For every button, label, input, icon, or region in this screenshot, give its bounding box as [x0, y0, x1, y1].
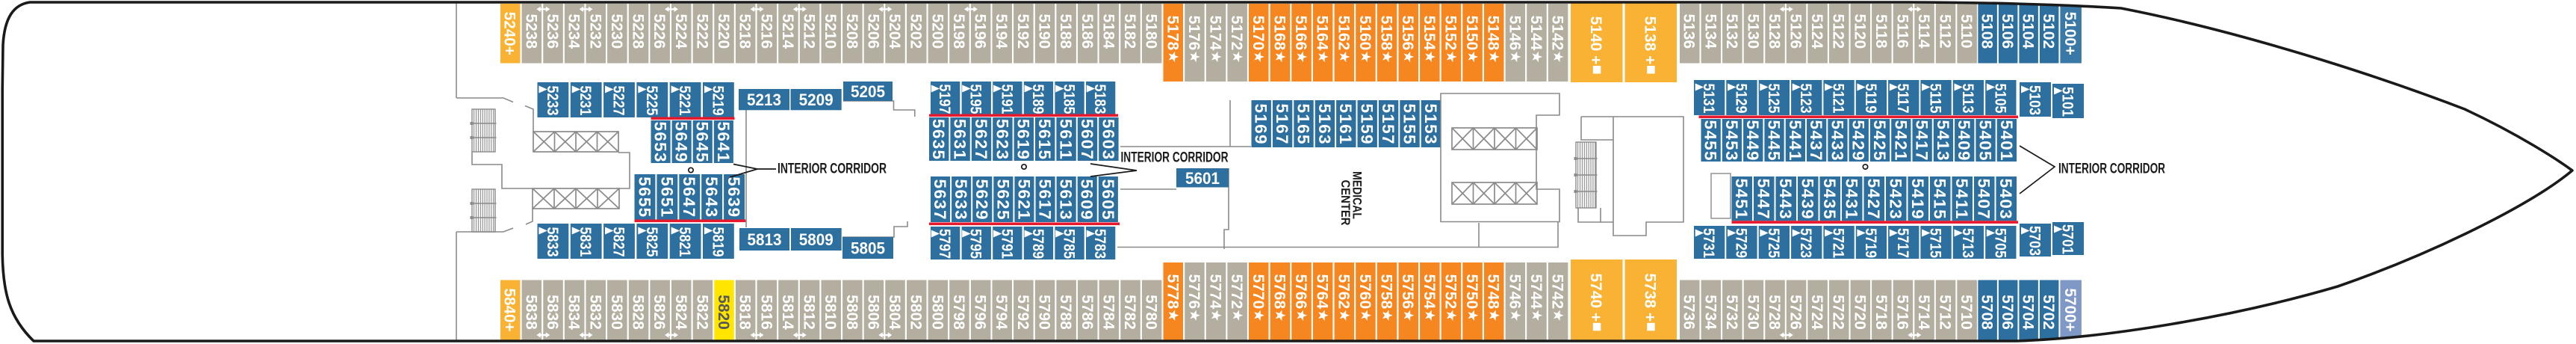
svg-text:5154: 5154	[1421, 16, 1438, 51]
svg-text:5785: 5785	[1061, 229, 1078, 259]
svg-text:5407: 5407	[1975, 179, 1993, 219]
svg-text:5224: 5224	[672, 13, 689, 49]
svg-text:5447: 5447	[1754, 179, 1773, 219]
svg-text:5234: 5234	[565, 13, 583, 49]
svg-text:5176: 5176	[1185, 16, 1202, 51]
svg-text:5185: 5185	[1061, 85, 1078, 114]
svg-text:5232: 5232	[586, 13, 603, 49]
svg-text:5732: 5732	[1723, 295, 1740, 330]
svg-text:5102: 5102	[2040, 13, 2057, 49]
svg-text:5639: 5639	[724, 176, 743, 217]
svg-text:5788: 5788	[1057, 295, 1074, 330]
svg-text:5635: 5635	[929, 119, 948, 159]
svg-text:5797: 5797	[936, 229, 953, 259]
svg-text:5445: 5445	[1765, 120, 1784, 161]
svg-text:5188: 5188	[1057, 13, 1074, 49]
svg-text:5128: 5128	[1766, 13, 1783, 49]
svg-text:5104: 5104	[2020, 13, 2037, 49]
svg-text:5163: 5163	[1315, 104, 1334, 144]
svg-text:5148: 5148	[1485, 16, 1502, 51]
svg-text:5609: 5609	[1078, 179, 1096, 220]
svg-text:5712: 5712	[1937, 295, 1954, 330]
svg-text:5774: 5774	[1207, 274, 1224, 309]
svg-text:5129: 5129	[1733, 84, 1750, 114]
svg-text:5178: 5178	[1164, 16, 1181, 51]
svg-text:5403: 5403	[1996, 179, 2015, 219]
svg-text:5225: 5225	[643, 86, 660, 116]
svg-text:5437: 5437	[1807, 120, 1825, 161]
svg-text:5710: 5710	[1958, 295, 1975, 330]
svg-text:5219: 5219	[709, 86, 726, 116]
svg-text:5764: 5764	[1314, 274, 1331, 309]
svg-text:5809: 5809	[799, 230, 834, 249]
svg-text:5705: 5705	[1991, 228, 2008, 258]
svg-text:5792: 5792	[1014, 295, 1031, 330]
svg-text:5441: 5441	[1786, 120, 1804, 161]
svg-text:5443: 5443	[1776, 179, 1795, 219]
svg-text:5633: 5633	[952, 179, 970, 220]
svg-text:5196: 5196	[972, 13, 989, 49]
svg-text:5783: 5783	[1091, 229, 1108, 259]
svg-text:5768: 5768	[1270, 274, 1288, 309]
svg-text:5728: 5728	[1766, 295, 1783, 330]
svg-text:5158: 5158	[1378, 16, 1395, 51]
svg-text:5730: 5730	[1744, 295, 1761, 330]
svg-text:5816: 5816	[757, 295, 775, 330]
svg-text:5134: 5134	[1701, 13, 1719, 49]
svg-text:5619: 5619	[1014, 119, 1033, 159]
svg-text:5828: 5828	[630, 295, 647, 330]
svg-text:5103: 5103	[2026, 85, 2043, 115]
svg-text:5601: 5601	[1185, 169, 1220, 188]
svg-text:5182: 5182	[1121, 13, 1138, 49]
svg-text:5756: 5756	[1399, 274, 1416, 309]
svg-text:5100+: 5100+	[2061, 12, 2079, 55]
svg-text:5804: 5804	[886, 295, 903, 330]
svg-text:5125: 5125	[1765, 84, 1782, 114]
svg-text:5752: 5752	[1442, 274, 1459, 309]
svg-text:5108: 5108	[1978, 13, 1996, 49]
svg-text:5802: 5802	[907, 295, 925, 330]
svg-text:5138 +: 5138 +	[1642, 16, 1659, 65]
svg-text:5118: 5118	[1872, 14, 1890, 49]
svg-text:5205: 5205	[851, 82, 885, 101]
svg-text:5194: 5194	[993, 13, 1010, 49]
svg-text:5197: 5197	[936, 85, 953, 114]
svg-text:5401: 5401	[1997, 120, 2016, 161]
svg-text:5230: 5230	[608, 13, 625, 49]
svg-text:5170: 5170	[1250, 16, 1267, 51]
svg-text:5439: 5439	[1798, 179, 1817, 219]
svg-text:5790: 5790	[1036, 295, 1053, 330]
svg-text:5208: 5208	[843, 13, 860, 49]
svg-text:5236: 5236	[544, 13, 561, 49]
svg-text:5762: 5762	[1335, 274, 1352, 309]
svg-text:5800: 5800	[928, 295, 946, 330]
svg-text:5760: 5760	[1356, 274, 1374, 309]
svg-text:5451: 5451	[1732, 179, 1751, 219]
svg-text:5834: 5834	[565, 295, 583, 330]
svg-text:5814: 5814	[779, 295, 796, 330]
svg-text:5702: 5702	[2040, 295, 2057, 330]
svg-text:5140 +: 5140 +	[1587, 16, 1604, 65]
svg-text:5713: 5713	[1959, 228, 1976, 258]
svg-text:5105: 5105	[1991, 84, 2008, 114]
svg-text:5186: 5186	[1078, 13, 1096, 49]
svg-text:5641: 5641	[714, 122, 733, 162]
svg-text:5126: 5126	[1787, 13, 1804, 49]
svg-text:5130: 5130	[1744, 13, 1761, 49]
svg-text:5231: 5231	[577, 86, 594, 116]
svg-text:5124: 5124	[1808, 13, 1825, 49]
svg-text:5116: 5116	[1893, 14, 1911, 49]
svg-text:5731: 5731	[1700, 228, 1717, 258]
svg-text:5233: 5233	[544, 86, 561, 116]
svg-text:5840+: 5840+	[501, 289, 518, 332]
svg-text:5738 +: 5738 +	[1642, 273, 1659, 322]
svg-text:5716: 5716	[1893, 295, 1911, 330]
svg-text:5200: 5200	[928, 13, 946, 49]
svg-text:5421: 5421	[1891, 120, 1910, 161]
svg-text:5216: 5216	[757, 13, 775, 49]
svg-text:5159: 5159	[1358, 104, 1377, 144]
svg-text:5119: 5119	[1862, 84, 1879, 114]
svg-text:5789: 5789	[1029, 229, 1046, 259]
svg-text:5794: 5794	[993, 295, 1010, 330]
svg-text:5115: 5115	[1927, 84, 1944, 114]
svg-text:5603: 5603	[1099, 119, 1117, 159]
svg-text:5725: 5725	[1765, 228, 1782, 258]
svg-text:5429: 5429	[1849, 120, 1868, 161]
svg-text:5827: 5827	[610, 227, 627, 257]
svg-text:5204: 5204	[886, 13, 903, 49]
svg-text:5700+: 5700+	[2061, 289, 2079, 332]
svg-text:5210: 5210	[822, 13, 839, 49]
svg-text:5822: 5822	[693, 295, 710, 330]
svg-text:5830: 5830	[608, 295, 625, 330]
svg-text:5776: 5776	[1185, 274, 1202, 309]
svg-text:5719: 5719	[1862, 228, 1879, 258]
svg-text:5649: 5649	[672, 122, 691, 162]
svg-text:5708: 5708	[1978, 295, 1996, 330]
svg-text:5413: 5413	[1934, 120, 1952, 161]
svg-text:5820: 5820	[715, 295, 732, 330]
svg-text:5651: 5651	[657, 176, 676, 217]
svg-text:5810: 5810	[822, 295, 839, 330]
svg-text:5218: 5218	[736, 13, 754, 49]
svg-text:INTERIOR CORRIDOR: INTERIOR CORRIDOR	[2058, 161, 2165, 177]
svg-text:5729: 5729	[1733, 228, 1750, 258]
svg-text:5146: 5146	[1506, 16, 1523, 51]
svg-text:5704: 5704	[2020, 295, 2037, 330]
svg-text:5625: 5625	[993, 179, 1012, 220]
svg-text:5160: 5160	[1356, 16, 1374, 51]
svg-text:5168: 5168	[1270, 16, 1288, 51]
svg-text:5818: 5818	[736, 295, 754, 330]
svg-text:5629: 5629	[972, 179, 991, 220]
svg-text:5101: 5101	[2059, 87, 2076, 117]
svg-text:5740 +: 5740 +	[1587, 273, 1604, 322]
svg-text:5742: 5742	[1549, 274, 1566, 309]
svg-text:5189: 5189	[1029, 85, 1046, 114]
svg-text:5703: 5703	[2026, 226, 2043, 256]
svg-text:5748: 5748	[1485, 274, 1502, 309]
svg-text:5240+: 5240+	[501, 12, 518, 55]
svg-text:5724: 5724	[1808, 295, 1825, 330]
svg-text:5117: 5117	[1894, 84, 1911, 114]
svg-text:5214: 5214	[779, 13, 796, 49]
svg-text:5821: 5821	[676, 227, 693, 257]
svg-text:5131: 5131	[1700, 84, 1717, 114]
svg-text:5156: 5156	[1399, 16, 1416, 51]
svg-text:5819: 5819	[709, 227, 726, 257]
svg-text:5121: 5121	[1830, 84, 1847, 114]
svg-text:5144: 5144	[1527, 16, 1545, 51]
svg-text:5772: 5772	[1228, 274, 1245, 309]
svg-text:5833: 5833	[544, 227, 561, 257]
svg-text:5701: 5701	[2059, 224, 2076, 254]
svg-text:5114: 5114	[1915, 14, 1932, 49]
svg-text:5202: 5202	[907, 13, 925, 49]
svg-text:5153: 5153	[1421, 104, 1440, 144]
svg-text:5455: 5455	[1701, 120, 1720, 161]
svg-text:5180: 5180	[1143, 13, 1160, 49]
svg-text:5617: 5617	[1036, 179, 1055, 220]
svg-text:5162: 5162	[1335, 16, 1352, 51]
svg-text:5209: 5209	[799, 90, 834, 109]
svg-text:INTERIOR CORRIDOR: INTERIOR CORRIDOR	[1121, 150, 1229, 166]
svg-text:5136: 5136	[1680, 13, 1698, 49]
svg-text:5778: 5778	[1164, 274, 1181, 309]
svg-text:5112: 5112	[1937, 14, 1954, 49]
svg-text:5808: 5808	[843, 295, 860, 330]
svg-text:5718: 5718	[1872, 295, 1890, 330]
svg-text:5157: 5157	[1379, 104, 1397, 144]
svg-text:5784: 5784	[1099, 295, 1117, 330]
svg-text:5832: 5832	[586, 295, 603, 330]
svg-text:5165: 5165	[1294, 104, 1312, 144]
svg-text:5419: 5419	[1908, 179, 1927, 219]
svg-text:5722: 5722	[1830, 295, 1847, 330]
svg-text:5433: 5433	[1828, 120, 1846, 161]
svg-text:5238: 5238	[522, 13, 539, 49]
svg-text:5221: 5221	[676, 86, 693, 116]
svg-text:5653: 5653	[651, 122, 670, 162]
svg-text:5720: 5720	[1851, 295, 1868, 330]
svg-text:5758: 5758	[1378, 274, 1395, 309]
svg-text:5824: 5824	[672, 295, 689, 330]
svg-text:5615: 5615	[1035, 119, 1054, 159]
svg-text:5786: 5786	[1078, 295, 1096, 330]
svg-text:5195: 5195	[967, 85, 984, 114]
svg-text:5736: 5736	[1680, 295, 1698, 330]
svg-text:5714: 5714	[1915, 295, 1932, 330]
svg-text:5643: 5643	[702, 176, 721, 217]
svg-text:5226: 5226	[651, 13, 668, 49]
svg-text:5813: 5813	[748, 230, 782, 249]
svg-text:5409: 5409	[1955, 120, 1973, 161]
svg-text:5766: 5766	[1292, 274, 1309, 309]
svg-text:5746: 5746	[1506, 274, 1523, 309]
svg-text:5110: 5110	[1958, 14, 1975, 49]
svg-text:5744: 5744	[1527, 274, 1545, 309]
svg-text:5812: 5812	[801, 295, 818, 330]
svg-text:5780: 5780	[1143, 295, 1160, 330]
svg-text:5183: 5183	[1091, 85, 1108, 114]
svg-text:5798: 5798	[950, 295, 967, 330]
svg-text:5191: 5191	[998, 85, 1015, 114]
svg-text:5613: 5613	[1057, 179, 1076, 220]
svg-text:5155: 5155	[1400, 104, 1418, 144]
svg-text:5706: 5706	[1999, 295, 2016, 330]
svg-text:5734: 5734	[1701, 295, 1719, 330]
svg-text:5723: 5723	[1797, 228, 1814, 258]
svg-text:5637: 5637	[931, 179, 949, 220]
svg-text:5423: 5423	[1887, 179, 1905, 219]
svg-text:5212: 5212	[801, 13, 818, 49]
svg-text:5198: 5198	[950, 13, 967, 49]
svg-text:5791: 5791	[998, 229, 1015, 259]
svg-text:5192: 5192	[1014, 13, 1031, 49]
svg-text:5647: 5647	[680, 176, 698, 217]
svg-text:5726: 5726	[1787, 295, 1804, 330]
svg-text:5164: 5164	[1314, 16, 1331, 51]
svg-text:5825: 5825	[643, 227, 660, 257]
svg-text:5435: 5435	[1820, 179, 1839, 219]
svg-text:5161: 5161	[1336, 104, 1355, 144]
svg-text:5838: 5838	[522, 295, 539, 330]
svg-text:5805: 5805	[851, 239, 885, 258]
svg-text:5184: 5184	[1099, 13, 1117, 49]
svg-text:5122: 5122	[1830, 13, 1847, 49]
svg-text:5120: 5120	[1851, 13, 1868, 49]
svg-text:5607: 5607	[1078, 119, 1096, 159]
svg-text:5172: 5172	[1228, 16, 1245, 51]
svg-text:5106: 5106	[1999, 13, 2016, 49]
svg-text:5150: 5150	[1463, 16, 1480, 51]
svg-text:5142: 5142	[1549, 16, 1566, 51]
svg-text:5167: 5167	[1273, 104, 1291, 144]
svg-text:5222: 5222	[693, 13, 710, 49]
svg-text:5806: 5806	[865, 295, 882, 330]
svg-text:5623: 5623	[993, 119, 1011, 159]
svg-text:5796: 5796	[972, 295, 989, 330]
svg-text:5190: 5190	[1036, 13, 1053, 49]
svg-text:5621: 5621	[1014, 179, 1033, 220]
svg-text:5836: 5836	[544, 295, 561, 330]
svg-text:5721: 5721	[1830, 228, 1847, 258]
svg-text:5415: 5415	[1931, 179, 1949, 219]
svg-text:5169: 5169	[1252, 104, 1270, 144]
svg-text:5655: 5655	[635, 176, 654, 217]
svg-text:5770: 5770	[1250, 274, 1267, 309]
svg-text:5782: 5782	[1121, 295, 1138, 330]
svg-text:5220: 5220	[715, 13, 732, 49]
svg-text:5605: 5605	[1099, 179, 1117, 220]
svg-text:5152: 5152	[1442, 16, 1459, 51]
svg-text:5123: 5123	[1797, 84, 1814, 114]
svg-text:CENTER: CENTER	[1338, 180, 1353, 226]
svg-text:5715: 5715	[1927, 228, 1944, 258]
svg-text:5453: 5453	[1722, 120, 1741, 161]
svg-text:5427: 5427	[1864, 179, 1883, 219]
svg-text:5449: 5449	[1743, 120, 1762, 161]
svg-text:5166: 5166	[1292, 16, 1309, 51]
svg-text:5431: 5431	[1843, 179, 1861, 219]
svg-text:5213: 5213	[747, 90, 781, 109]
svg-text:5206: 5206	[865, 13, 882, 49]
svg-text:5831: 5831	[577, 227, 594, 257]
svg-text:INTERIOR CORRIDOR: INTERIOR CORRIDOR	[778, 161, 887, 177]
svg-text:5795: 5795	[967, 229, 984, 259]
svg-text:5228: 5228	[630, 13, 647, 49]
svg-text:5627: 5627	[972, 119, 990, 159]
svg-text:5631: 5631	[951, 119, 969, 159]
svg-text:5750: 5750	[1463, 274, 1480, 309]
svg-text:5227: 5227	[610, 86, 627, 116]
svg-text:5425: 5425	[1870, 120, 1889, 161]
svg-text:5113: 5113	[1959, 84, 1976, 114]
svg-text:5174: 5174	[1207, 16, 1224, 51]
svg-text:5826: 5826	[651, 295, 668, 330]
svg-text:5717: 5717	[1894, 228, 1911, 258]
svg-text:5405: 5405	[1976, 120, 1995, 161]
svg-text:5132: 5132	[1723, 13, 1740, 49]
svg-text:5754: 5754	[1421, 274, 1438, 309]
svg-text:5417: 5417	[1913, 120, 1931, 161]
svg-text:5645: 5645	[693, 122, 712, 162]
